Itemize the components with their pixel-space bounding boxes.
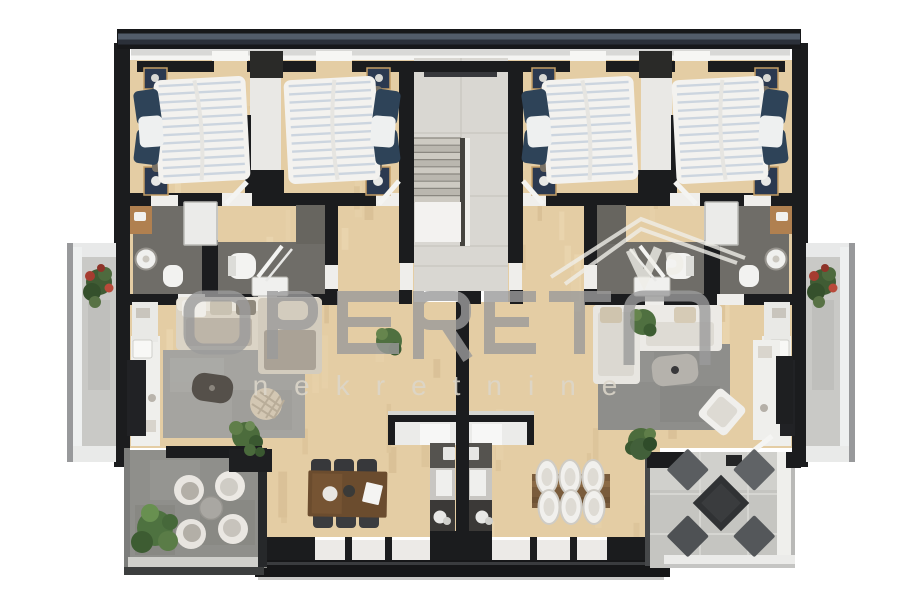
svg-text:nekretnine: nekretnine	[253, 370, 644, 401]
